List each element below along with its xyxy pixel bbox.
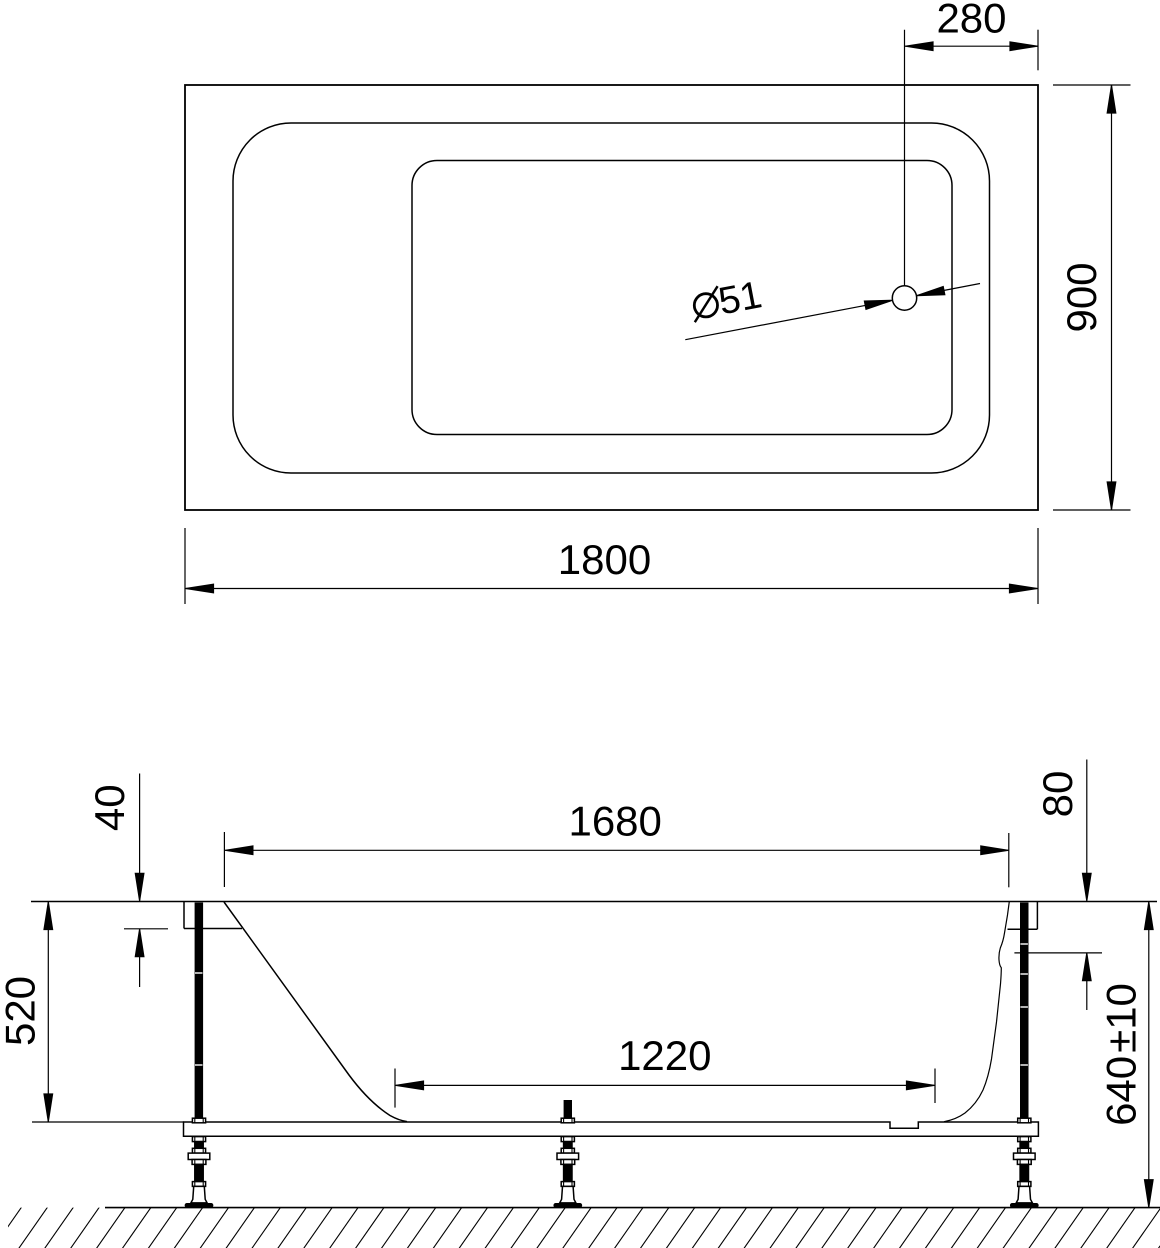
svg-text:51: 51 — [715, 273, 765, 323]
svg-text:1220: 1220 — [618, 1032, 711, 1079]
svg-text:40: 40 — [86, 784, 133, 831]
svg-text:1680: 1680 — [568, 798, 661, 845]
svg-text:900: 900 — [1058, 262, 1105, 332]
svg-text:80: 80 — [1034, 771, 1081, 818]
svg-text:280: 280 — [936, 0, 1006, 41]
svg-text:640±10: 640±10 — [1098, 983, 1145, 1126]
svg-text:1800: 1800 — [558, 536, 651, 583]
svg-text:520: 520 — [0, 976, 43, 1046]
